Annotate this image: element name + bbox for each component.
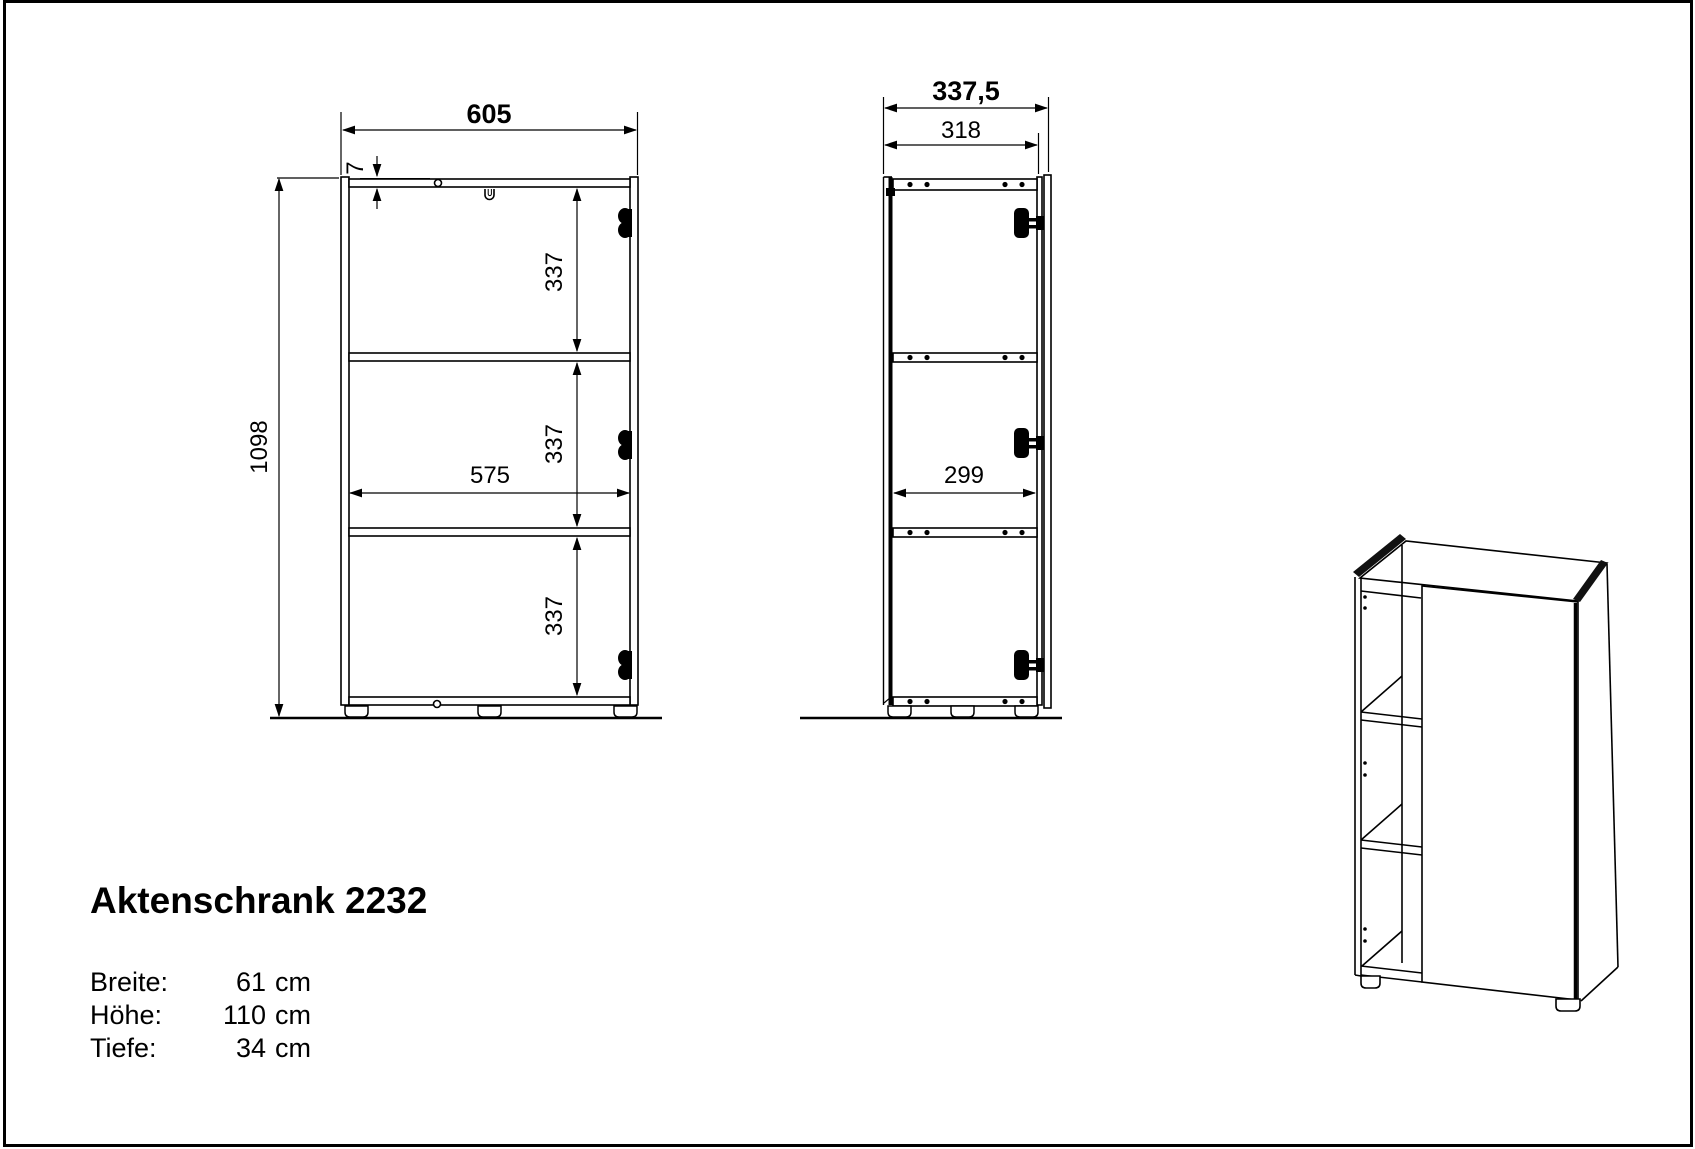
wall-bracket-inner <box>488 189 491 196</box>
spec-label: Tiefe: <box>90 1032 208 1065</box>
front-shelf-1 <box>349 353 630 361</box>
side-foot <box>951 706 974 717</box>
spec-list: Breite: 61 cm Höhe: 110 cm Tiefe: 34 cm <box>90 966 311 1065</box>
spec-unit: cm <box>275 999 311 1032</box>
front-view-dimensions <box>277 112 638 716</box>
spec-unit: cm <box>275 966 311 999</box>
front-bottom-hole <box>434 701 441 708</box>
dim-side-carcass-depth: 318 <box>941 117 981 144</box>
spec-value: 61 <box>208 966 266 999</box>
spec-label: Höhe: <box>90 999 208 1032</box>
spec-row-hoehe: Höhe: 110 cm <box>90 999 311 1032</box>
side-door-panel <box>1044 175 1051 708</box>
front-view <box>270 177 662 718</box>
side-foot <box>888 706 911 717</box>
dim-front-section-3: 337 <box>541 596 568 636</box>
3d-shelf <box>1361 676 1422 727</box>
hinge-icon <box>618 650 632 680</box>
dim-side-inner-depth: 299 <box>944 462 984 489</box>
spec-row-tiefe: Tiefe: 34 cm <box>90 1032 311 1065</box>
spec-unit: cm <box>275 1032 311 1065</box>
3d-foot <box>1556 999 1580 1011</box>
page-title: Aktenschrank 2232 <box>90 880 427 922</box>
shelf-pin-holes <box>1363 595 1367 943</box>
3d-door <box>1422 586 1578 1000</box>
wall-bracket-icon <box>485 189 494 200</box>
front-foot <box>345 706 368 717</box>
side-top-bracket <box>886 188 895 196</box>
dim-front-section-1: 337 <box>541 252 568 292</box>
front-top-panel <box>349 179 630 187</box>
front-foot <box>478 706 501 717</box>
dim-side-total-depth: 337,5 <box>932 76 1000 106</box>
side-foot <box>1015 706 1038 717</box>
side-bottom-panel <box>893 697 1037 706</box>
side-shelf-2 <box>893 528 1037 537</box>
dim-front-total-height: 1098 <box>246 420 273 473</box>
hinge-icon <box>618 208 632 238</box>
3d-shelf <box>1361 804 1422 855</box>
front-top-hole <box>435 180 442 187</box>
side-shelf-1 <box>893 353 1037 362</box>
side-screws <box>907 182 1024 704</box>
dim-front-section-2: 337 <box>541 424 568 464</box>
spec-label: Breite: <box>90 966 208 999</box>
front-bottom-panel <box>349 697 630 705</box>
spec-value: 110 <box>208 999 266 1032</box>
front-foot <box>614 706 637 717</box>
spec-value: 34 <box>208 1032 266 1065</box>
side-view <box>800 175 1062 718</box>
front-shelf-2 <box>349 528 630 536</box>
spec-row-breite: Breite: 61 cm <box>90 966 311 999</box>
dim-front-top-thickness: 7 <box>342 161 369 174</box>
3d-foot <box>1361 976 1380 988</box>
side-top-panel <box>893 179 1037 190</box>
cabinet-3d-view <box>1353 534 1618 1011</box>
front-left-side-panel <box>341 177 349 705</box>
dim-front-inner-width: 575 <box>470 462 510 489</box>
hinge-icon <box>618 430 632 460</box>
dim-front-total-width: 605 <box>466 99 511 129</box>
